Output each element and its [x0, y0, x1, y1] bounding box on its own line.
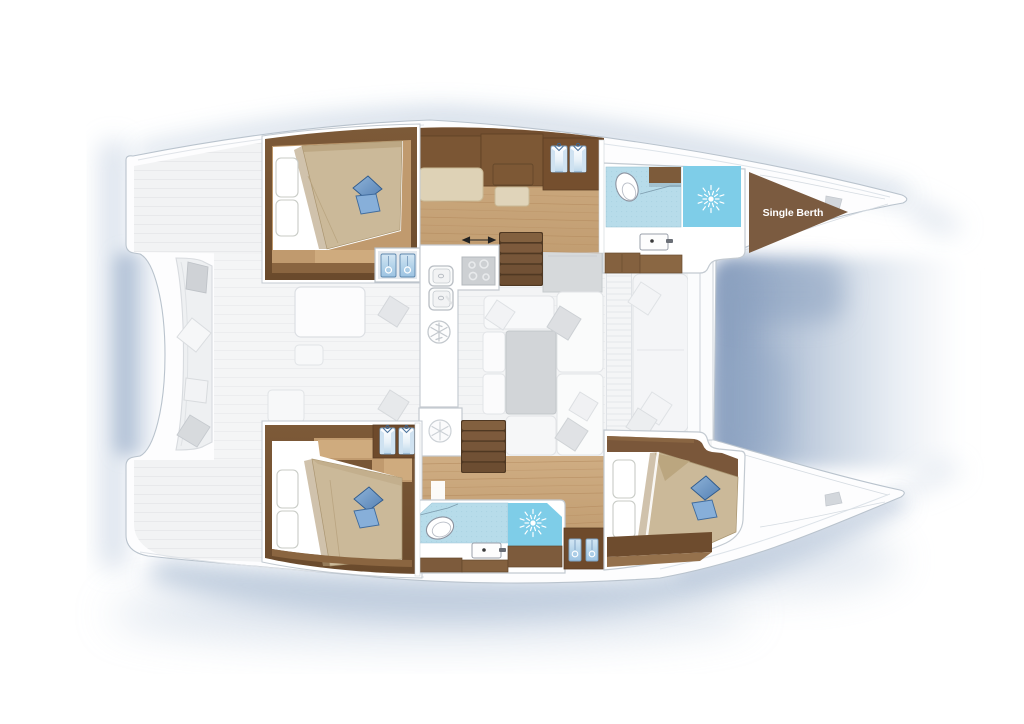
svg-text:Single Berth: Single Berth	[763, 207, 824, 219]
